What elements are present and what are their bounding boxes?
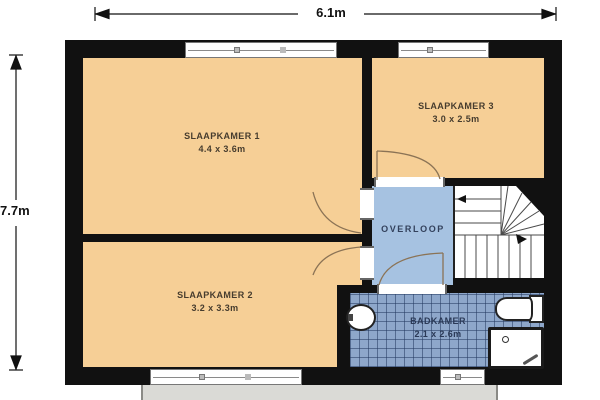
label-overloop: OVERLOOP xyxy=(360,223,466,236)
room-name: BADKAMER xyxy=(378,315,498,328)
room-size: 3.2 x 3.3m xyxy=(115,302,315,315)
sink-icon xyxy=(346,304,376,331)
room-name: OVERLOOP xyxy=(360,223,466,236)
label-badkamer: BADKAMER 2.1 x 2.6m xyxy=(378,315,498,340)
label-slaapkamer-3: SLAAPKAMER 3 3.0 x 2.5m xyxy=(368,100,544,125)
shower-hose-icon xyxy=(522,354,538,366)
wall-bedroom1-bedroom2 xyxy=(65,234,372,242)
door-opening-bedroom3 xyxy=(374,177,445,187)
door-opening-bedroom1 xyxy=(360,188,374,220)
sink-tap-icon xyxy=(348,314,353,321)
room-size: 4.4 x 3.6m xyxy=(122,143,322,156)
window-bathroom xyxy=(440,369,485,385)
width-dimension-label: 6.1m xyxy=(300,5,362,20)
window-bedroom3 xyxy=(398,42,489,58)
floor-plan: 6.1m 7.7m SLAAPKAMER 1 4.4 x 3.6m SLAAPK… xyxy=(0,0,600,400)
room-name: SLAAPKAMER 3 xyxy=(368,100,544,113)
room-name: SLAAPKAMER 2 xyxy=(115,289,315,302)
height-dimension-label: 7.7m xyxy=(0,203,38,218)
room-name: SLAAPKAMER 1 xyxy=(122,130,322,143)
room-size: 2.1 x 2.6m xyxy=(378,328,498,341)
wall-stairs-bathroom xyxy=(453,278,544,293)
door-opening-bedroom2 xyxy=(360,246,374,280)
window-bedroom1 xyxy=(185,42,337,58)
porch-slab xyxy=(141,385,498,400)
label-slaapkamer-1: SLAAPKAMER 1 4.4 x 3.6m xyxy=(122,130,322,155)
window-bedroom2 xyxy=(150,369,302,385)
label-slaapkamer-2: SLAAPKAMER 2 3.2 x 3.3m xyxy=(115,289,315,314)
door-opening-bathroom xyxy=(377,284,447,294)
room-size: 3.0 x 2.5m xyxy=(368,113,544,126)
wall-bedroom2-bathroom xyxy=(337,285,350,367)
toilet-icon xyxy=(495,297,533,321)
shower-drain-icon xyxy=(502,336,509,343)
stairwell xyxy=(453,186,544,278)
